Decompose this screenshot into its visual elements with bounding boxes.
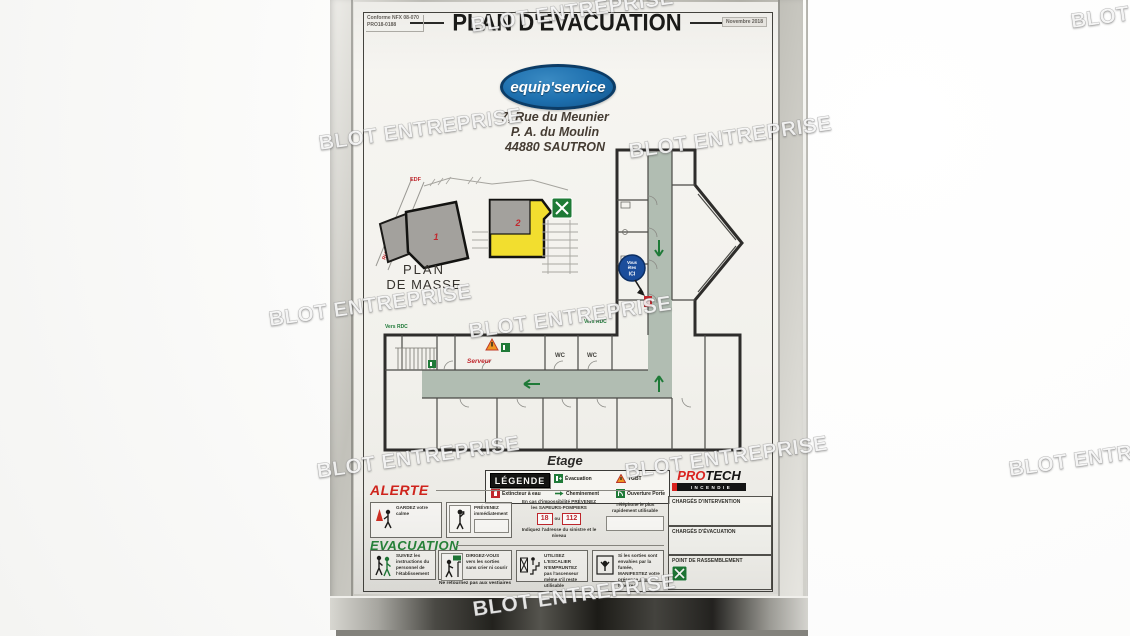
wc-left-label: WC	[555, 353, 566, 359]
charges-evacuation-box: CHARGÉS D'ÉVACUATION	[668, 526, 772, 555]
charges-intervention-label: CHARGÉS D'INTERVENTION	[672, 499, 740, 505]
protech-brand: PROTECH	[672, 469, 746, 482]
exit-sign-icon	[501, 343, 510, 352]
evac-step-1-text: SUIVEZ les instructions du personnel de …	[396, 553, 433, 577]
warning-triangle-icon	[486, 339, 498, 350]
company-logo: equip'service	[500, 64, 616, 110]
exit-green-icon	[554, 474, 563, 483]
keep-calm-text: GARDEZ votre calme	[396, 505, 439, 517]
fire-person-pictogram	[373, 505, 393, 531]
notify-column: PRÉVENEZ immédiatement	[474, 505, 509, 533]
evacuation-plan-poster: PLAN D'EVACUATION Conforme NFX 08-070 PR…	[354, 2, 778, 594]
firemen-line-3: Indiquez l'adresse du sinistre et le niv…	[516, 527, 602, 539]
phone-note-block: Téléphone le plus rapidement utilisable	[606, 502, 664, 531]
vers-rdc-left: Vers RDC	[385, 324, 408, 330]
point-rassemblement-label: POINT DE RASSEMBLEMENT	[672, 558, 743, 564]
firemen-instructions: En cas d'impossibilité PRÉVENEZ les SAPE…	[516, 499, 602, 539]
alerte-step-notify: PRÉVENEZ immédiatement	[446, 502, 512, 538]
conformity-line-1: Conforme NFX 08-070	[367, 15, 419, 22]
frame-right-seam	[778, 0, 780, 596]
phone-blank-field	[606, 516, 664, 531]
number-or: ou	[555, 516, 561, 522]
protech-logo: PROTECH INCENDIE	[672, 469, 746, 491]
evac-step-2: DIRIGEZ-VOUS vers les sorties sans crier…	[438, 550, 512, 580]
firemen-line-2: les SAPEURS-POMPIERS	[516, 505, 602, 511]
phone-person-pictogram	[449, 505, 471, 533]
address-line-1: 7, Rue du Meunier	[455, 110, 655, 125]
frame-bottom-rail	[330, 596, 808, 630]
point-rassemblement-box: POINT DE RASSEMBLEMENT	[668, 555, 772, 590]
protech-subtitle: INCENDIE	[672, 483, 746, 491]
evacuation-rule	[456, 545, 664, 546]
legend-title: LÉGENDE	[490, 473, 550, 488]
floor-label: Etage	[504, 453, 626, 468]
svg-text:êtes: êtes	[628, 265, 637, 270]
legend-label: Extincteur à eau	[502, 491, 541, 497]
corridor-horizontal	[422, 370, 672, 398]
title-rule-right	[690, 22, 724, 24]
floor-plan-etage: Vous êtes ICI Serveur WC WC Vers RDC Ver…	[382, 144, 752, 459]
notify-text: PRÉVENEZ immédiatement	[474, 505, 509, 517]
fixture-1	[621, 202, 630, 208]
exit-door-pictogram	[441, 553, 463, 581]
no-elevator-stairs-pictogram	[519, 553, 541, 579]
evac-step-3: UTILISEZ L'ESCALIER N'EMPRUNTEZ pas l'as…	[516, 550, 588, 582]
charges-evacuation-label: CHARGÉS D'ÉVACUATION	[672, 529, 736, 535]
photo-of-evacuation-plan: PLAN D'EVACUATION Conforme NFX 08-070 PR…	[0, 0, 1130, 636]
evac-step-4-text: Si les sorties sont envahies par la fumé…	[618, 553, 661, 589]
evac-step-3-text: UTILISEZ L'ESCALIER N'EMPRUNTEZ pas l'as…	[544, 553, 585, 589]
alerte-step-keep-calm: GARDEZ votre calme	[370, 502, 442, 538]
two-walkers-pictogram	[373, 553, 393, 579]
address-line-2: P. A. du Moulin	[455, 125, 655, 140]
header: PLAN D'EVACUATION	[363, 10, 771, 36]
legend-item-tgbt: TGBT	[616, 474, 642, 483]
protech-tech: TECH	[705, 468, 740, 483]
you-are-here-marker: Vous êtes ICI	[619, 255, 645, 296]
watermark: BLOT ENTREPRISE	[1007, 430, 1130, 482]
emergency-numbers: 18 ou 112	[516, 513, 602, 524]
evac-step-4: Si les sorties sont envahies par la fumé…	[592, 550, 664, 582]
conformity-reference: Conforme NFX 08-070 PRO18-0188	[366, 15, 424, 32]
window-person-pictogram	[595, 553, 615, 579]
alerte-title: ALERTE	[370, 482, 429, 498]
frame-bottom-shadow	[336, 630, 808, 636]
legend-label: Évacuation	[565, 476, 592, 482]
phone-note-text: Téléphone le plus rapidement utilisable	[606, 502, 664, 514]
legend-label: TGBT	[628, 476, 642, 482]
interior-walls	[385, 150, 736, 450]
charges-intervention-box: CHARGÉS D'INTERVENTION	[668, 496, 772, 526]
vers-rdc-right: Vers RDC	[584, 319, 607, 325]
extinguisher-icon	[644, 296, 652, 307]
corridor-vertical	[648, 152, 672, 398]
page-title: PLAN D'EVACUATION	[452, 9, 681, 37]
wc-right-label: WC	[587, 353, 598, 359]
notify-blank-field	[474, 519, 509, 533]
evac-step-1: SUIVEZ les instructions du personnel de …	[370, 550, 436, 580]
number-18: 18	[537, 513, 553, 524]
legend-label: Ouverture Porte	[627, 491, 665, 497]
assembly-point-icon	[672, 566, 687, 581]
legend-item-evacuation: Évacuation	[554, 474, 592, 483]
evac-step-2b-text: Ne retournez pas aux vestiaires	[438, 581, 512, 586]
warning-triangle-icon	[616, 474, 626, 483]
protech-pro: PRO	[677, 468, 705, 483]
svg-text:ICI: ICI	[629, 272, 636, 278]
frame-left-seam	[351, 0, 353, 596]
evac-step-2-text: DIRIGEZ-VOUS vers les sorties sans crier…	[466, 553, 509, 571]
number-112: 112	[562, 513, 581, 524]
revision-date: Novembre 2018	[722, 17, 767, 27]
frame-right-highlight	[803, 0, 806, 610]
company-name: equip'service	[510, 79, 605, 96]
alerte-rule	[436, 490, 664, 491]
conformity-line-2: PRO18-0188	[367, 22, 419, 29]
exit-sign-icon-stairs	[428, 360, 436, 368]
legend-label: Cheminement	[566, 491, 599, 497]
watermark: BLOT ENTREPRISE	[1069, 0, 1130, 34]
server-room-label: Serveur	[467, 358, 492, 365]
